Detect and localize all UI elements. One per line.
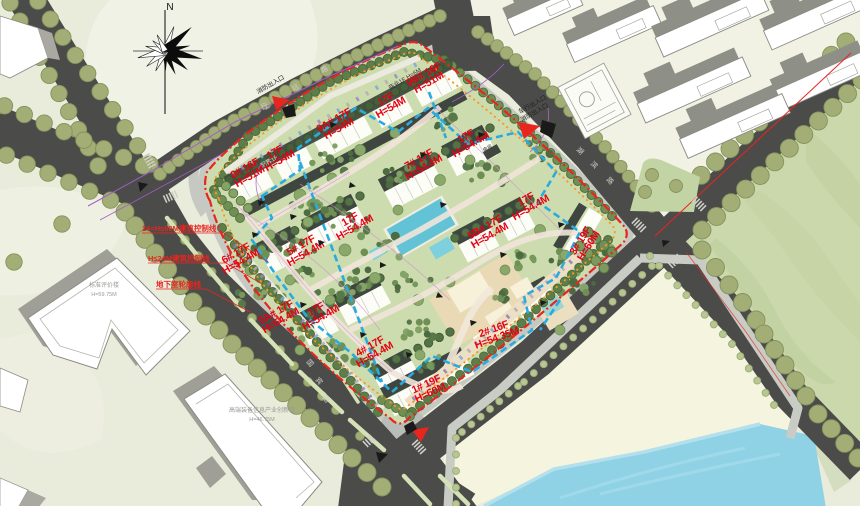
- svg-text:H≤24M建筑控制线: H≤24M建筑控制线: [148, 253, 210, 263]
- svg-text:H=59.75M: H=59.75M: [91, 292, 117, 298]
- svg-text:H=46.75M: H=46.75M: [249, 417, 275, 423]
- svg-text:地下室轮廓线: 地下室轮廓线: [156, 279, 201, 289]
- svg-text:N: N: [166, 2, 173, 13]
- svg-text:高端装备信息产业创新楼: 高端装备信息产业创新楼: [229, 406, 295, 414]
- svg-text:24<H≤60M建筑控制线: 24<H≤60M建筑控制线: [142, 223, 217, 233]
- svg-text:标准评价楼: 标准评价楼: [89, 281, 119, 289]
